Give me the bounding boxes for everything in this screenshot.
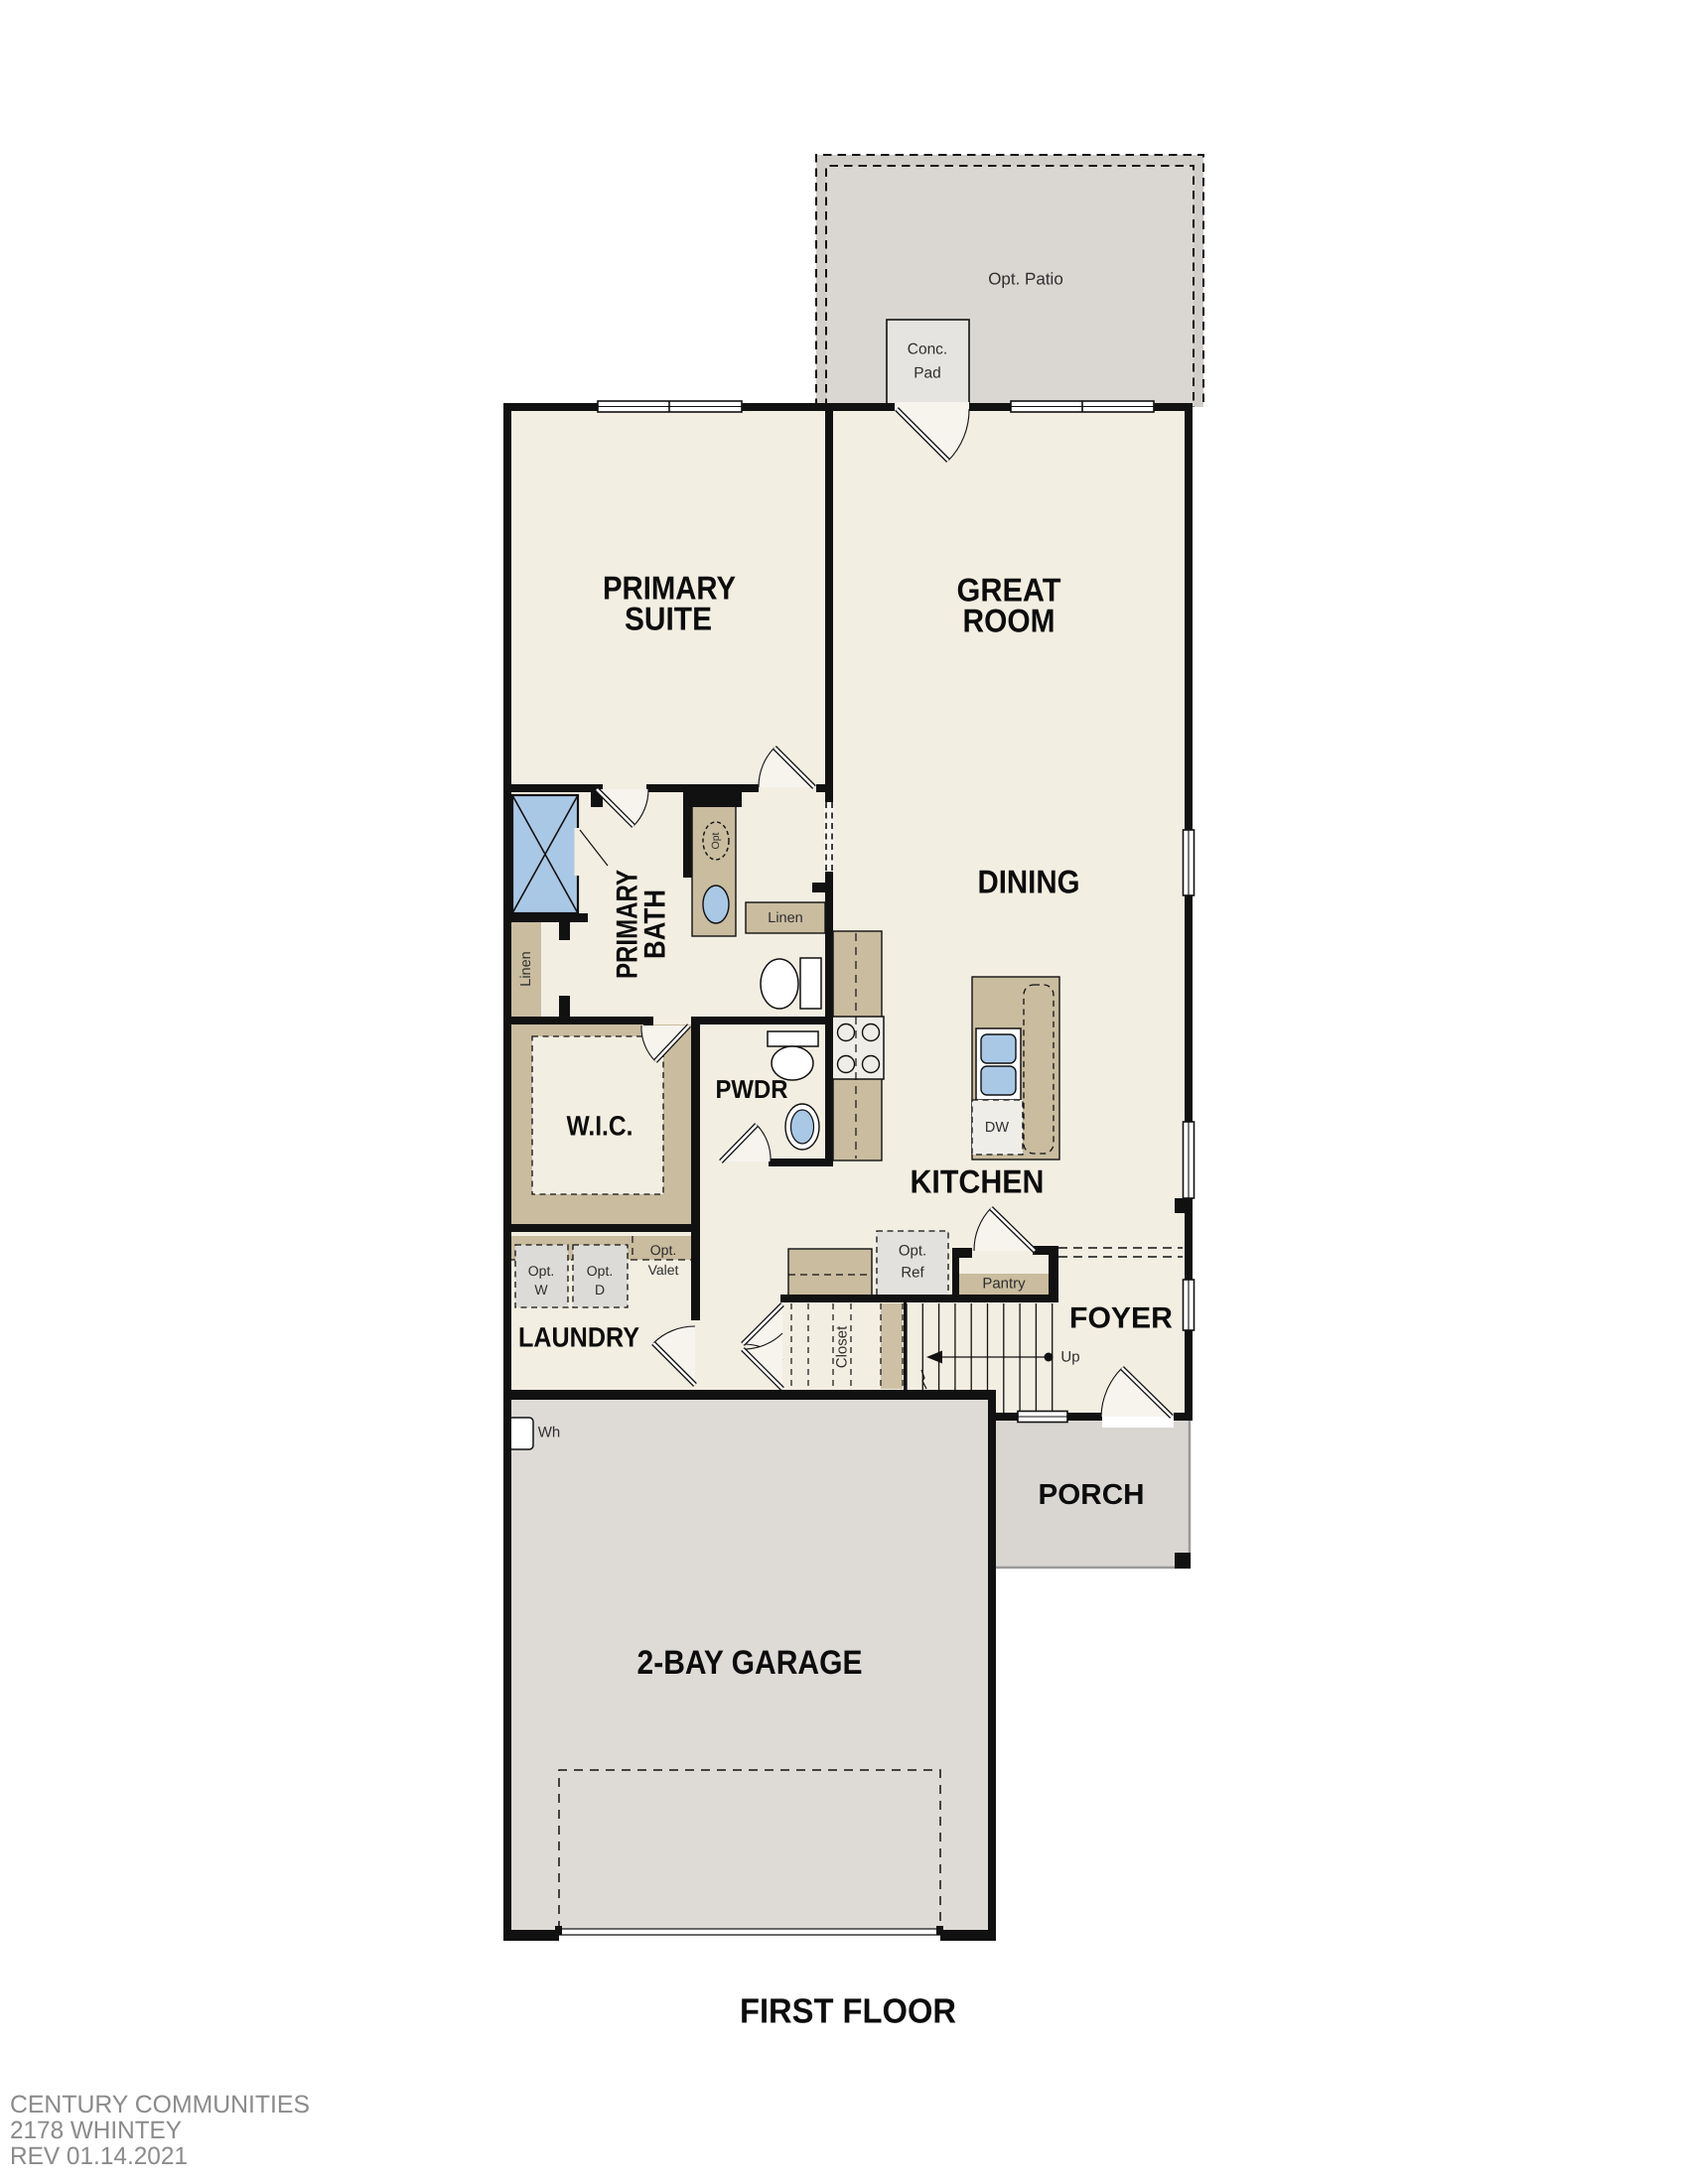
svg-text:W: W [534, 1282, 548, 1297]
svg-text:Opt.: Opt. [650, 1242, 676, 1258]
svg-text:LAUNDRY: LAUNDRY [518, 1322, 639, 1353]
svg-text:CENTURY COMMUNITIES: CENTURY COMMUNITIES [10, 2091, 310, 2118]
svg-text:DINING: DINING [978, 864, 1080, 900]
svg-text:2-BAY GARAGE: 2-BAY GARAGE [637, 1644, 863, 1682]
svg-text:BATH: BATH [639, 889, 672, 959]
svg-text:Pantry: Pantry [982, 1276, 1026, 1293]
svg-text:PORCH: PORCH [1039, 1479, 1145, 1511]
svg-text:Linen: Linen [768, 910, 802, 926]
svg-text:Closet: Closet [834, 1325, 851, 1368]
svg-text:Valet: Valet [648, 1262, 679, 1278]
svg-text:Opt.: Opt. [587, 1263, 613, 1279]
svg-text:PWDR: PWDR [716, 1074, 788, 1104]
svg-text:Opt.: Opt. [528, 1263, 554, 1279]
svg-text:Opt. Patio: Opt. Patio [988, 270, 1063, 289]
svg-text:Opt.: Opt. [899, 1243, 926, 1260]
svg-text:D: D [595, 1282, 605, 1297]
svg-text:FOYER: FOYER [1069, 1302, 1173, 1335]
svg-text:Opt: Opt [710, 832, 722, 849]
svg-text:REV 01.14.2021: REV 01.14.2021 [10, 2142, 188, 2170]
svg-text:SUITE: SUITE [625, 601, 712, 637]
svg-text:ROOM: ROOM [963, 603, 1055, 639]
svg-text:W.I.C.: W.I.C. [567, 1111, 633, 1142]
svg-text:Pad: Pad [914, 365, 941, 382]
svg-text:KITCHEN: KITCHEN [911, 1163, 1045, 1200]
svg-text:Up: Up [1060, 1349, 1079, 1366]
svg-text:Conc.: Conc. [908, 341, 948, 358]
svg-text:Ref: Ref [901, 1265, 924, 1282]
svg-text:FIRST FLOOR: FIRST FLOOR [740, 1992, 956, 2031]
svg-text:Wh: Wh [538, 1425, 561, 1441]
svg-text:Linen: Linen [518, 951, 534, 986]
svg-text:DW: DW [985, 1120, 1009, 1136]
svg-text:2178 WHINTEY: 2178 WHINTEY [10, 2116, 182, 2144]
